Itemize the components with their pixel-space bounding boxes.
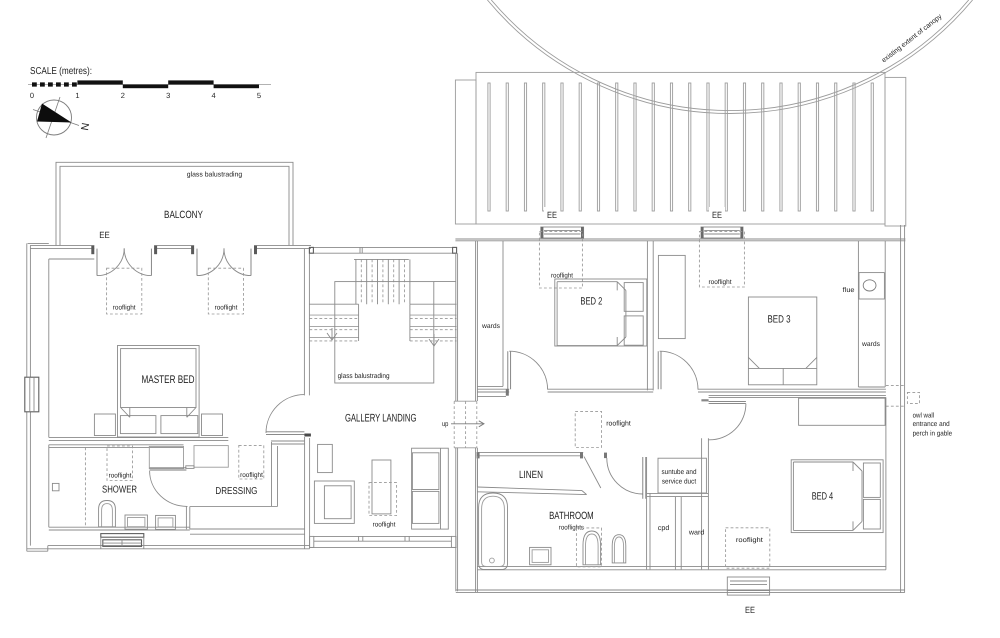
svg-text:ward: ward: [688, 529, 705, 537]
svg-text:cpd: cpd: [658, 524, 670, 532]
svg-text:flue: flue: [843, 287, 855, 294]
svg-text:DRESSING: DRESSING: [215, 486, 257, 497]
svg-text:SHOWER: SHOWER: [102, 484, 137, 495]
svg-text:rooflights: rooflights: [559, 524, 585, 531]
svg-text:rooflight: rooflight: [240, 472, 263, 479]
svg-text:2: 2: [121, 91, 125, 100]
svg-text:LINEN: LINEN: [519, 469, 543, 481]
svg-text:EE: EE: [745, 605, 755, 615]
svg-text:MASTER BED: MASTER BED: [142, 374, 195, 386]
svg-text:0: 0: [30, 91, 34, 100]
svg-text:suntube and: suntube and: [662, 468, 697, 476]
svg-text:glass balustrading: glass balustrading: [338, 372, 390, 380]
svg-text:EE: EE: [99, 230, 110, 240]
svg-text:rooflight: rooflight: [113, 305, 136, 312]
svg-text:rooflight: rooflight: [709, 279, 732, 286]
svg-text:4: 4: [212, 91, 216, 100]
svg-text:3: 3: [166, 91, 170, 100]
svg-text:SCALE (metres):: SCALE (metres):: [30, 66, 92, 77]
svg-text:BED 2: BED 2: [580, 295, 602, 307]
svg-text:wards: wards: [481, 323, 501, 330]
svg-text:wards: wards: [861, 341, 881, 348]
svg-text:GALLERY LANDING: GALLERY LANDING: [345, 412, 417, 424]
svg-text:EE: EE: [547, 210, 557, 220]
svg-text:5: 5: [257, 91, 261, 100]
svg-text:1: 1: [75, 91, 79, 100]
svg-text:perch in gable: perch in gable: [913, 429, 953, 437]
svg-text:BALCONY: BALCONY: [164, 209, 203, 221]
svg-text:service duct: service duct: [662, 477, 696, 485]
svg-text:rooflight: rooflight: [373, 521, 396, 528]
svg-text:rooflight: rooflight: [606, 420, 631, 428]
svg-text:up: up: [442, 421, 449, 428]
svg-text:BED 3: BED 3: [768, 313, 791, 325]
svg-text:rooflight: rooflight: [736, 537, 763, 544]
svg-text:rooflight: rooflight: [215, 305, 238, 312]
svg-text:BATHROOM: BATHROOM: [549, 510, 594, 522]
svg-text:entrance and: entrance and: [913, 420, 950, 428]
svg-text:BED 4: BED 4: [812, 490, 834, 502]
svg-text:rooflight: rooflight: [109, 473, 132, 480]
svg-text:glass balustrading: glass balustrading: [187, 170, 243, 178]
svg-text:owl wall: owl wall: [913, 411, 935, 419]
svg-text:EE: EE: [712, 210, 722, 220]
